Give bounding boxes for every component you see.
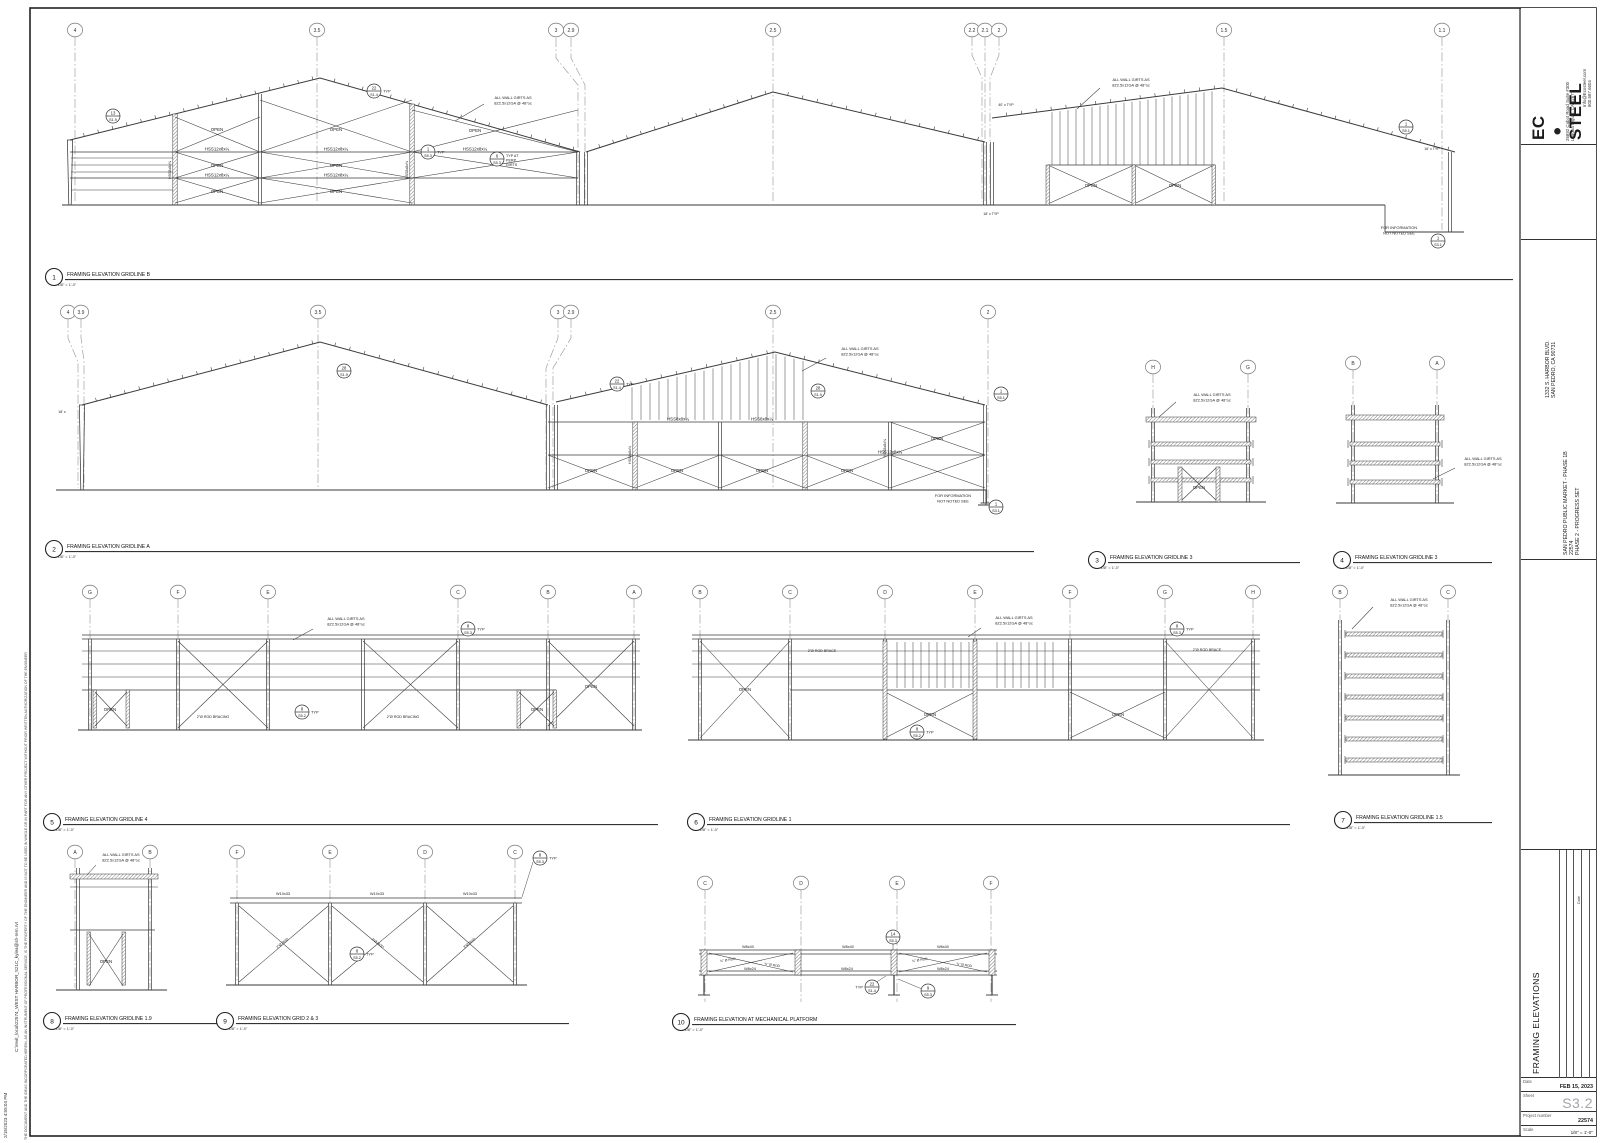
company-address-line2: Laguna Niguel, CA 92677 bbox=[1570, 31, 1575, 141]
drawing-label: OPEN bbox=[1112, 712, 1124, 717]
callout-suffix: TYP bbox=[549, 856, 557, 861]
callout-sheet-number: S3.1 bbox=[1434, 243, 1442, 247]
project-number-field: Project number 22574 bbox=[1521, 1112, 1596, 1126]
note-text: ALL WALL GIRTS AS bbox=[327, 616, 365, 621]
callout-sheet-number: S1.4 bbox=[868, 989, 876, 993]
callout-sheet-number: S5.2 bbox=[913, 734, 921, 738]
grid-bubble-label: C bbox=[703, 881, 707, 887]
grid-bubble-label: G bbox=[1246, 365, 1250, 371]
grid-bubble-label: 3 bbox=[555, 28, 558, 34]
drawing-title: FRAMING ELEVATION GRIDLINE 3 bbox=[1355, 555, 1438, 561]
drawing-scale: 1/8" = 1'-0" bbox=[58, 555, 77, 559]
scale-field: Scale 1/8" = 1'-0" bbox=[1521, 1126, 1596, 1136]
note-text: 8Z2.5x12GA @ 48"oc bbox=[1112, 82, 1150, 87]
note-text: ALL WALL GIRTS AS bbox=[494, 95, 532, 100]
drawing-label: W8x24 bbox=[841, 967, 853, 971]
callout-sheet-number: S5.3 bbox=[889, 939, 897, 943]
project-phase: PHASE 2 - PROGRESS SET bbox=[1575, 415, 1581, 555]
callout-suffix: TYP AT bbox=[506, 154, 519, 158]
drawing-label: HSS12x8x¼ bbox=[878, 450, 903, 455]
callout-suffix: TYP bbox=[366, 952, 374, 957]
grid-bubble-label: 2.1 bbox=[982, 28, 989, 34]
drawing-label: OPEN bbox=[739, 687, 751, 692]
grid-bubble-label: 2.9 bbox=[568, 28, 575, 34]
company-address: 26892 Cabot Road Suite #300 Laguna Nigue… bbox=[1565, 31, 1575, 141]
callout-detail-number: 13 bbox=[111, 110, 116, 115]
drawing-label: OPEN bbox=[100, 959, 112, 964]
drawing-label: OPEN bbox=[931, 436, 943, 441]
logo-cell: EC●STEEL 26892 Cabot Road Suite #300 Lag… bbox=[1521, 8, 1596, 145]
scale-label: Scale bbox=[1523, 1127, 1533, 1132]
drawing-label: OPEN bbox=[469, 128, 481, 133]
note-text: ALL WALL GIRTS AS bbox=[1390, 597, 1428, 602]
drawing-number: 8 bbox=[50, 1018, 54, 1025]
revision-grid-line bbox=[1566, 850, 1567, 1078]
drawing-title: FRAMING ELEVATION GRIDLINE 3 bbox=[1110, 555, 1193, 561]
revision-grid-line bbox=[1559, 850, 1560, 1078]
grid-bubble-label: C bbox=[788, 590, 792, 596]
drawing-scale: 1/8" = 1'-0" bbox=[1346, 566, 1365, 570]
callout-suffix: GIRTS bbox=[506, 163, 518, 167]
grid-bubble-label: F bbox=[989, 881, 992, 887]
drawing-title: FRAMING ELEVATION GRIDLINE 1.9 bbox=[65, 1016, 152, 1022]
grid-bubble-label: 2.2 bbox=[969, 28, 976, 34]
grid-bubble-label: 2.9 bbox=[568, 310, 575, 316]
callout-sheet-number: S1.9 bbox=[109, 118, 117, 122]
note-text: ALL WALL GIRTS AS bbox=[102, 852, 140, 857]
drawing-label: OPEN bbox=[1085, 183, 1097, 188]
callout-sheet-number: S5.3 bbox=[493, 161, 501, 165]
drawing-scale: 1/8" = 1'-0" bbox=[1101, 566, 1120, 570]
revision-date-header: Date bbox=[1577, 864, 1581, 904]
sheet-drawing-svg: ALL WALL GIRTS AS8Z2.5x12GA @ 48"ocALL W… bbox=[0, 0, 1600, 1143]
drawing-title: FRAMING ELEVATION GRIDLINE A bbox=[67, 544, 150, 550]
project-number-value: 22574 bbox=[1578, 1118, 1593, 1124]
drawing-label: W10x33 bbox=[370, 892, 384, 896]
note-text: ALL WALL GIRTS AS bbox=[1112, 77, 1150, 82]
drawing-title: FRAMING ELEVATION GRIDLINE 1.5 bbox=[1356, 815, 1443, 821]
grid-bubble-label: F bbox=[1068, 590, 1071, 596]
grid-bubble-label: 2.5 bbox=[770, 28, 777, 34]
drawing-title: FRAMING ELEVATION AT MECHANICAL PLATFORM bbox=[694, 1017, 817, 1023]
revision-grid-line bbox=[1589, 850, 1590, 1078]
project-address: 1332 S. HARBOR BLVD. SAN PEDRO, CA 90731 bbox=[1545, 268, 1557, 398]
revision-grid-line bbox=[1573, 850, 1574, 1078]
drawing-number: 4 bbox=[1340, 557, 1344, 564]
grid-bubble-label: C bbox=[456, 590, 460, 596]
project-cell: 1332 S. HARBOR BLVD. SAN PEDRO, CA 90731… bbox=[1521, 240, 1596, 560]
drawing-label: HSS12x8x¼ bbox=[324, 173, 349, 178]
callout-suffix: TYP bbox=[926, 730, 934, 735]
drawing-label: W8x40 bbox=[742, 945, 754, 949]
callout-suffix: TYP bbox=[383, 89, 391, 94]
elevation-6-framing-gridline-1: ALL WALL GIRTS AS8Z2.5x12GA @ 48"ocOPENO… bbox=[688, 585, 1264, 740]
note-text: FOR INFORMATION bbox=[935, 493, 971, 498]
drawing-label: ¾" Ø ROD bbox=[912, 957, 929, 963]
revision-cell: Date FRAMING ELEVATIONS bbox=[1521, 850, 1596, 1078]
callout-detail-number: 14 bbox=[891, 931, 896, 936]
drawing-label: 2"Ø ROD BRACE bbox=[808, 649, 837, 653]
drawing-titles: 1FRAMING ELEVATION GRIDLINE B1/8" = 1'-0… bbox=[44, 269, 1514, 1033]
sheet-number-field: Sheet S3.2 bbox=[1521, 1092, 1596, 1112]
grid-bubble-label: G bbox=[88, 590, 92, 596]
elevation-7-framing-gridline-1-5: ALL WALL GIRTS AS8Z2.5x12GA @ 48"ocBC bbox=[1328, 585, 1460, 775]
drawing-label: OPEN bbox=[211, 127, 223, 132]
grid-bubble-label: D bbox=[799, 881, 803, 887]
drawing-title: FRAMING ELEVATION GRIDLINE 4 bbox=[65, 817, 148, 823]
callout-detail-number: 28 bbox=[816, 385, 821, 390]
callout-sheet-number: S5.1 bbox=[997, 396, 1005, 400]
stamp-cell bbox=[1521, 145, 1596, 240]
note-text: 8Z2.5x12GA @ 48"oc bbox=[841, 351, 879, 356]
callout-detail-number: 22 bbox=[615, 378, 620, 383]
elevation-1-framing-gridline-b: ALL WALL GIRTS AS8Z2.5x12GA @ 48"ocALL W… bbox=[62, 23, 1464, 248]
drawing-label: 16' x TYP bbox=[1424, 147, 1440, 151]
scale-value: 1/8" = 1'-0" bbox=[1571, 1130, 1593, 1135]
callout-detail-number: 22 bbox=[372, 85, 377, 90]
note-text: ALL WALL GIRTS AS bbox=[841, 346, 879, 351]
drawing-label: HSS8x8x¼ bbox=[667, 417, 689, 422]
grid-bubble-label: 1.5 bbox=[1221, 28, 1228, 34]
note-text: ALL WALL GIRTS AS bbox=[995, 615, 1033, 620]
drawing-label: OPEN bbox=[585, 684, 597, 689]
callout-sheet-number: S5.3 bbox=[424, 154, 432, 158]
callout-sheet-number: S5.3 bbox=[1173, 631, 1181, 635]
drawing-label: OPEN bbox=[671, 468, 683, 473]
revision-grid-line bbox=[1581, 850, 1582, 1078]
drawing-label: OPEN bbox=[211, 189, 223, 194]
drawing-label: W8x24 bbox=[744, 967, 756, 971]
callout-sheet-number: S5.1 bbox=[1402, 129, 1410, 133]
project-number-label: Project number bbox=[1523, 1113, 1551, 1118]
note-text: 8Z2.5x12GA @ 48"oc bbox=[102, 857, 140, 862]
drawing-label: W8x24 bbox=[937, 967, 949, 971]
drawing-title: FRAMING ELEVATION GRIDLINE 1 bbox=[709, 817, 792, 823]
drawing-label: OPEN bbox=[924, 712, 936, 717]
drawing-number: 3 bbox=[1095, 557, 1099, 564]
elevation-5-framing-gridline-4: ALL WALL GIRTS AS8Z2.5x12GA @ 48"ocOPENO… bbox=[78, 585, 642, 730]
callout-suffix: TYP bbox=[626, 382, 634, 387]
drawing-label: HSS8x8x⅜ bbox=[628, 446, 632, 464]
grid-bubble-label: 2.5 bbox=[770, 310, 777, 316]
drawing-scale: 1/8" = 1'-0" bbox=[56, 1027, 75, 1031]
drawing-scale: 1/8" = 1'-0" bbox=[56, 828, 75, 832]
drawing-scale: 1/8" = 1'-0" bbox=[685, 1028, 704, 1032]
drawing-label: W10x33 bbox=[463, 892, 477, 896]
callout-sheet-number: S3.1 bbox=[992, 509, 1000, 513]
grid-bubble-label: 3.5 bbox=[315, 310, 322, 316]
elevation-2-framing-gridline-a: ALL WALL GIRTS AS8Z2.5x12GA @ 48"ocFOR I… bbox=[56, 305, 1008, 514]
title-block: EC●STEEL 26892 Cabot Road Suite #300 Lag… bbox=[1521, 8, 1596, 1136]
sheet-title: FRAMING ELEVATIONS bbox=[1531, 859, 1541, 1074]
drawing-number: 9 bbox=[223, 1018, 227, 1025]
drawing-scale: 1/8" = 1'-0" bbox=[58, 283, 77, 287]
elevation-9-framing-grid-2-3: W10x33W10x33W10x332"Ø ROD3"Ø ROD3"Ø ROD8… bbox=[226, 845, 557, 985]
ecosteel-hex-icon: ● bbox=[1549, 14, 1566, 140]
drawing-scale: 1/8" = 1'-0" bbox=[1347, 826, 1366, 830]
grid-bubble-label: G bbox=[1163, 590, 1167, 596]
drawing-label: OPEN bbox=[531, 707, 543, 712]
drawing-label: OPEN bbox=[104, 707, 116, 712]
drawing-label: OPEN bbox=[330, 127, 342, 132]
drawing-label: HSS12x8x¼ bbox=[463, 147, 488, 152]
notes-cell bbox=[1521, 560, 1596, 850]
grid-bubble-label: 4 bbox=[67, 310, 70, 316]
note-text: ALL WALL GIRTS AS bbox=[1464, 456, 1502, 461]
drawing-label: 2"Ø ROD BRACING bbox=[387, 715, 420, 719]
print-datetime: 2/15/2023 4:55:04 PM bbox=[3, 1048, 8, 1138]
drawing-number: 7 bbox=[1341, 817, 1345, 824]
drawing-label: OPEN bbox=[585, 468, 597, 473]
drawing-label: OPEN bbox=[841, 468, 853, 473]
drawing-label: HSS8x8x⅜ bbox=[405, 161, 409, 179]
drawing-label: HSS12x8x¼ bbox=[205, 173, 230, 178]
callout-sheet-number: S5.3 bbox=[464, 631, 472, 635]
drawing-label: HSS8x8x⅜ bbox=[168, 161, 172, 179]
drawing-label: 3"Ø ROD bbox=[462, 937, 476, 949]
drawing-label: OPEN bbox=[330, 189, 342, 194]
note-text: 8Z2.5x12GA @ 48"oc bbox=[995, 620, 1033, 625]
elevation-4-framing-gridline-3: ALL WALL GIRTS AS8Z2.5x12GA @ 48"ocBA bbox=[1336, 356, 1502, 503]
project-address-line2: SAN PEDRO, CA 90731 bbox=[1551, 268, 1557, 398]
drawing-title: FRAMING ELEVATION GRIDLINE B bbox=[67, 272, 151, 278]
drawing-label: 40' x TYP bbox=[998, 103, 1014, 107]
callout-sheet-number: S1.4 bbox=[613, 386, 621, 390]
callout-sheet-number: S1.9 bbox=[814, 393, 822, 397]
grid-bubble-label: 3 bbox=[557, 310, 560, 316]
drawing-label: 2"Ø ROD BRACING bbox=[197, 715, 230, 719]
drawing-label: OPEN bbox=[330, 163, 342, 168]
grid-bubble-label: D bbox=[883, 590, 887, 596]
grid-bubble-label: F bbox=[176, 590, 179, 596]
grid-bubble-label: C bbox=[513, 850, 517, 856]
grid-bubble-label: C bbox=[1446, 590, 1450, 596]
drawing-label: OPEN bbox=[211, 163, 223, 168]
elevation-8-framing-gridline-1-9: ALL WALL GIRTS AS8Z2.5x12GA @ 48"ocOPENA… bbox=[56, 845, 167, 990]
drawing-label: W8x40 bbox=[842, 945, 854, 949]
date-field: Date FEB 15, 2023 bbox=[1521, 1078, 1596, 1092]
note-text: 8Z2.5x12GA @ 48"oc bbox=[1464, 461, 1502, 466]
logo-prefix: EC bbox=[1529, 115, 1548, 140]
drawing-number: 6 bbox=[694, 819, 698, 826]
drawing-label: 18' x bbox=[58, 410, 66, 414]
callout-suffix: TYP bbox=[437, 150, 445, 155]
callout-prefix: TYP bbox=[855, 985, 863, 990]
callout-sheet-number: S1.4 bbox=[370, 93, 378, 97]
drawing-label: HSS12x8x¼ bbox=[205, 147, 230, 152]
callout-sheet-number: S1.9 bbox=[340, 373, 348, 377]
grid-bubble-label: F bbox=[235, 850, 238, 856]
drawing-number: 10 bbox=[677, 1019, 685, 1026]
drawing-label: OPEN bbox=[1169, 183, 1181, 188]
callout-suffix: PERP bbox=[506, 159, 517, 163]
grid-bubble-label: H bbox=[1151, 365, 1155, 371]
callout-sheet-number: S5.2 bbox=[353, 956, 361, 960]
elevation-3-framing-gridline-3: ALL WALL GIRTS AS8Z2.5x12GA @ 48"ocOPENH… bbox=[1136, 360, 1266, 502]
sheet-number: S3.2 bbox=[1562, 1095, 1593, 1111]
callout-sheet-number: S5.2 bbox=[298, 714, 306, 718]
callout-detail-number: 28 bbox=[342, 365, 347, 370]
drawing-scale: 1/8" = 1'-0" bbox=[700, 828, 719, 832]
date-value: FEB 15, 2023 bbox=[1560, 1084, 1593, 1090]
note-text: NOT NOTED SEE bbox=[937, 498, 969, 503]
grid-bubble-label: 3.9 bbox=[78, 310, 85, 316]
drawing-label: HSS8x8x¼ bbox=[751, 417, 773, 422]
drawing-number: 5 bbox=[50, 819, 54, 826]
drawing-label: W8x40 bbox=[937, 945, 949, 949]
grid-bubble-label: 4 bbox=[74, 28, 77, 34]
drawing-label: 2"Ø ROD BRACE bbox=[1193, 648, 1222, 652]
note-text: 8Z2.5x12GA @ 48"oc bbox=[1390, 602, 1428, 607]
elevation-10-mechanical-platform: W8x40W8x40W8x40W8x24W8x24W8x24¾" Ø ROD¾"… bbox=[697, 876, 998, 1002]
note-text: 8Z2.5x12GA @ 48"oc bbox=[1193, 397, 1231, 402]
company-contact: Info@Ecosteel.com 800.587.6604 bbox=[1582, 12, 1592, 107]
drawing-scale: 1/8" = 1'-0" bbox=[229, 1027, 248, 1031]
callout-suffix: TYP bbox=[1186, 627, 1194, 632]
drawing-number: 2 bbox=[52, 546, 56, 553]
drawing-sheet: ALL WALL GIRTS AS8Z2.5x12GA @ 48"ocALL W… bbox=[0, 0, 1600, 1143]
drawing-label: HSS8x8x⅜ bbox=[883, 439, 887, 457]
note-text: 8Z2.5x12GA @ 48"oc bbox=[494, 100, 532, 105]
grid-bubble-label: 2 bbox=[998, 28, 1001, 34]
drawing-number: 1 bbox=[52, 274, 56, 281]
grid-bubble-label: H bbox=[1251, 590, 1255, 596]
drawing-label: OPEN bbox=[1193, 485, 1205, 490]
grid-bubble-label: 3.5 bbox=[314, 28, 321, 34]
callout-sheet-number: S5.3 bbox=[536, 860, 544, 864]
drawing-label: W10x33 bbox=[276, 892, 290, 896]
project-title: SAN PEDRO PUBLIC MARKET - PHASE 1B 22574… bbox=[1563, 415, 1581, 555]
grid-bubble-label: D bbox=[423, 850, 427, 856]
callout-suffix: TYP bbox=[477, 627, 485, 632]
grid-bubble-label: 2 bbox=[987, 310, 990, 316]
date-label: Date bbox=[1523, 1079, 1532, 1084]
note-text: ALL WALL GIRTS AS bbox=[1193, 392, 1231, 397]
callout-suffix: TYP bbox=[311, 710, 319, 715]
note-text: NOT NOTED SEE bbox=[1383, 230, 1415, 235]
note-text: FOR INFORMATION bbox=[1381, 225, 1417, 230]
callout-detail-number: 22 bbox=[870, 981, 875, 986]
callout-sheet-number: S5.3 bbox=[924, 993, 932, 997]
ecosteel-logo: EC●STEEL bbox=[1529, 14, 1586, 140]
note-text: 8Z2.5x12GA @ 48"oc bbox=[327, 621, 365, 626]
copyright-disclaimer: THE DOCUMENT AND THE IDEAS INCORPORATED … bbox=[24, 295, 28, 1140]
sheet-label: Sheet bbox=[1523, 1093, 1534, 1098]
company-phone: 800.587.6604 bbox=[1587, 12, 1592, 107]
grid-bubble-label: 1.1 bbox=[1439, 28, 1446, 34]
drawing-label: OPEN bbox=[756, 468, 768, 473]
drawing-label: HSS12x8x¼ bbox=[324, 147, 349, 152]
drawing-label: 18' x TYP bbox=[983, 212, 999, 216]
drawing-title: FRAMING ELEVATION GRID 2 & 3 bbox=[238, 1016, 318, 1022]
drawing-label: ¾" Ø ROD bbox=[720, 957, 737, 963]
revit-file-path: C:\revit_local\22574_WEST HARBOR_S21C_ky… bbox=[14, 872, 19, 1052]
